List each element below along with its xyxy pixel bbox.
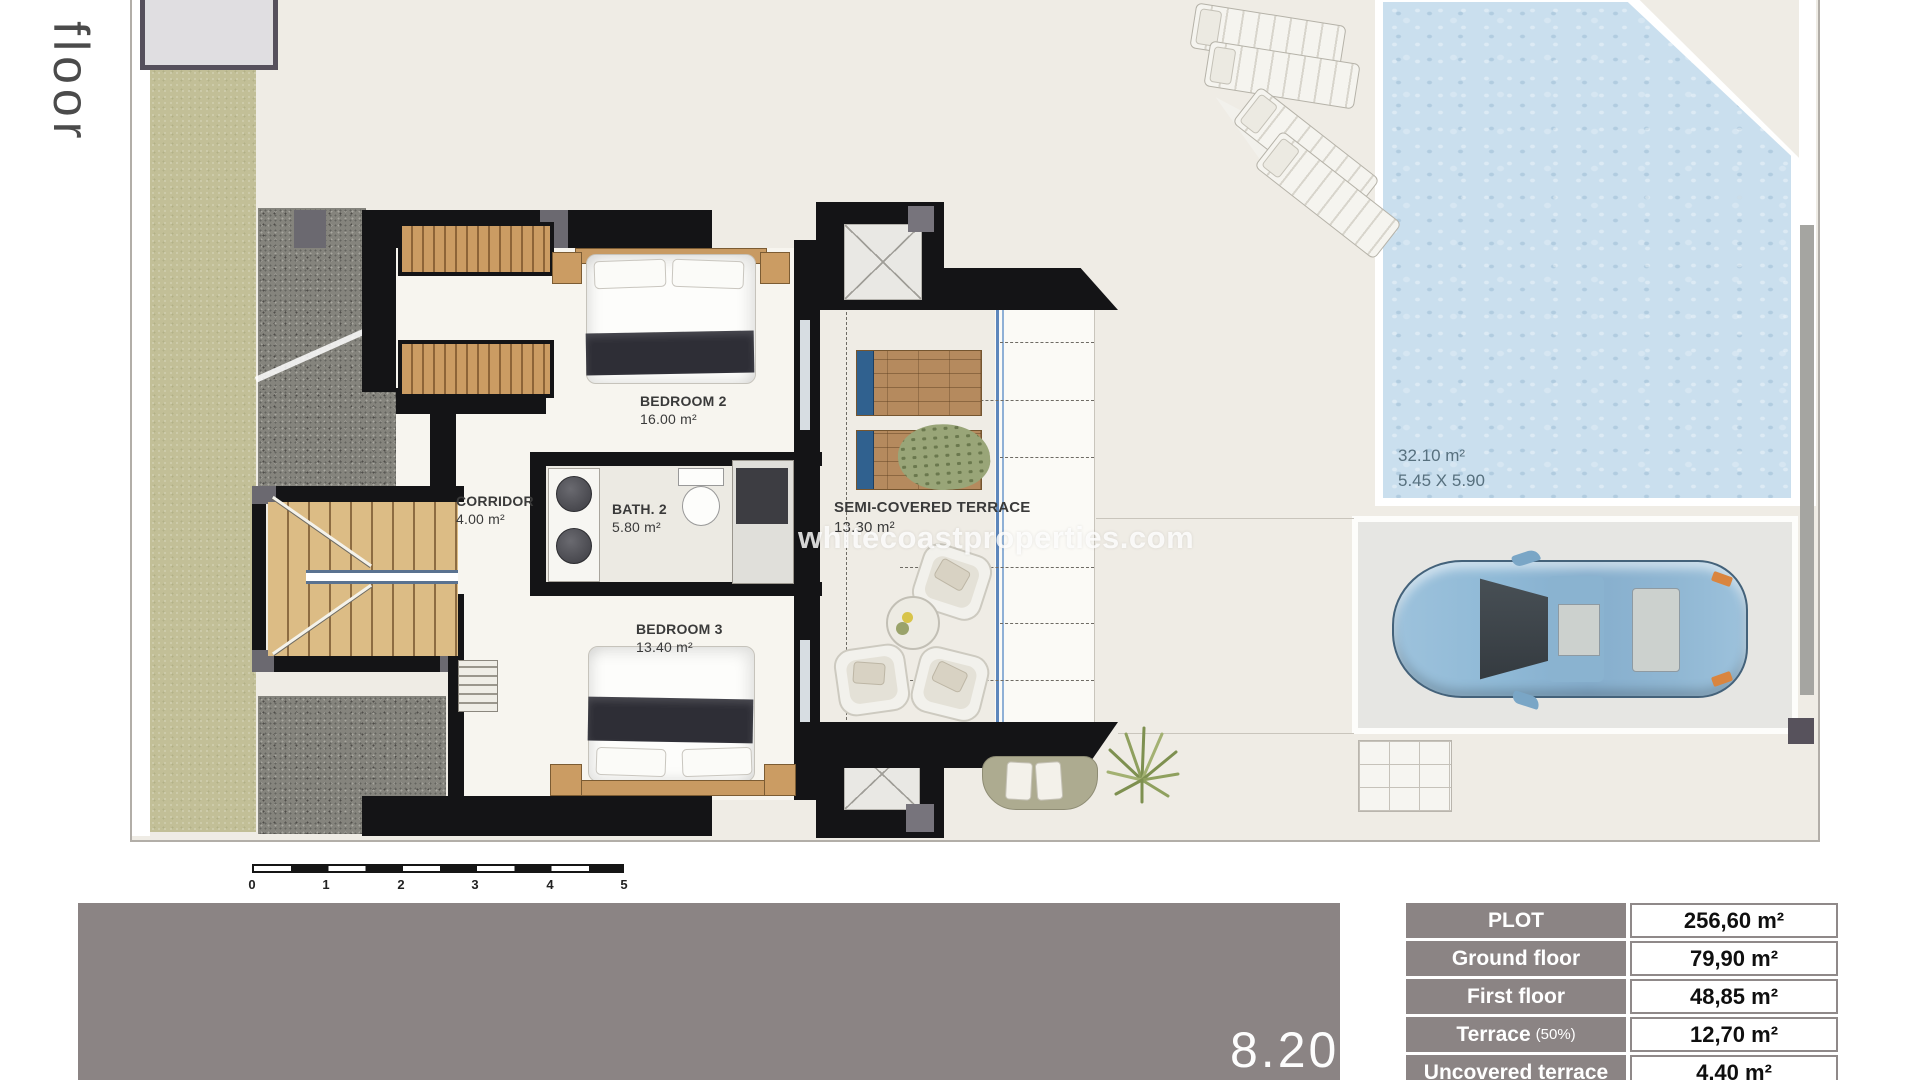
toilet: [678, 468, 724, 486]
bed-throw: [586, 331, 755, 376]
wall-segment: [252, 656, 464, 672]
wall-segment: [530, 582, 822, 596]
table-row-label: Uncovered terrace: [1406, 1055, 1626, 1080]
bench-cushion: [1035, 761, 1064, 801]
boundary-post: [1788, 718, 1814, 744]
nightstand: [550, 764, 582, 796]
floor-title-vertical: First floor: [42, 0, 100, 143]
boundary-wall-right: [1800, 225, 1814, 695]
shaft-x-symbol: [844, 224, 922, 300]
scale-tick: 3: [471, 877, 478, 892]
room-label-bath2: BATH. 2 5.80 m²: [612, 500, 667, 536]
room-name: SEMI-COVERED TERRACE: [834, 498, 1031, 518]
pool-label: 32.10 m² 5.45 X 5.90: [1398, 444, 1485, 493]
wall-segment: [252, 486, 266, 672]
table-row-label: Ground floor: [1406, 941, 1626, 976]
grass-plant: [1100, 720, 1184, 806]
table-row: Uncovered terrace 4,40 m²: [1406, 1055, 1838, 1080]
pillar: [906, 804, 934, 832]
table-row-value: 79,90 m²: [1630, 941, 1838, 976]
scale-tick: 2: [397, 877, 404, 892]
room-label-bedroom2: BEDROOM 2 16.00 m²: [640, 392, 727, 428]
wall-segment: [430, 388, 456, 492]
pool-area: 32.10 m²: [1398, 444, 1485, 469]
terrace-lounger: [856, 350, 982, 416]
paving-line: [1096, 518, 1354, 519]
room-area: 4.00 m²: [456, 510, 534, 528]
table-row: First floor 48,85 m²: [1406, 979, 1838, 1014]
room-name: BEDROOM 3: [636, 620, 723, 638]
table-row-label: PLOT: [1406, 903, 1626, 938]
pillar: [294, 210, 326, 248]
table-row-value: 12,70 m²: [1630, 1017, 1838, 1052]
wall-segment: [252, 486, 464, 502]
deck-edge-line: [1094, 310, 1095, 722]
car-rear-window: [1632, 588, 1680, 672]
roof-overhang-dashed: [1000, 623, 1094, 624]
scale-bar: 0 1 2 3 4 5: [252, 864, 624, 896]
window: [800, 640, 810, 730]
nightstand: [760, 252, 790, 284]
pillow: [596, 747, 667, 777]
table-row: Terrace(50%) 12,70 m²: [1406, 1017, 1838, 1052]
scale-tick: 5: [620, 877, 627, 892]
roof-overhang-dashed: [1000, 342, 1094, 343]
areas-table: PLOT 256,60 m² Ground floor 79,90 m² Fir…: [1406, 903, 1838, 1080]
pillow: [594, 259, 667, 289]
toilet: [682, 486, 720, 526]
table-row-value: 4,40 m²: [1630, 1055, 1838, 1080]
room-name: BEDROOM 2: [640, 392, 727, 410]
room-label-bedroom3: BEDROOM 3 13.40 m²: [636, 620, 723, 656]
garden-strip: [150, 58, 256, 832]
nightstand: [764, 764, 796, 796]
nightstand: [552, 252, 582, 284]
armchair: [832, 641, 913, 718]
sink: [556, 528, 592, 564]
stair-rail: [306, 570, 458, 584]
car-sunroof: [1558, 604, 1600, 656]
bench-cushion: [1005, 761, 1033, 800]
table-row-label: Terrace(50%): [1406, 1017, 1626, 1052]
window: [800, 320, 810, 430]
left-path-strip: [132, 0, 150, 836]
wall-segment: [362, 796, 712, 836]
room-name: CORRIDOR: [456, 492, 534, 510]
plan-number: 8.20: [1230, 1021, 1339, 1079]
shower-panel: [736, 468, 788, 524]
bottom-band: 8.20: [78, 903, 1340, 1080]
doormat: [458, 660, 498, 712]
wall-segment: [362, 210, 396, 392]
wardrobe: [398, 222, 554, 276]
table-row-label: First floor: [1406, 979, 1626, 1014]
room-name: BATH. 2: [612, 500, 667, 518]
table-row-value: 48,85 m²: [1630, 979, 1838, 1014]
table-decor: [896, 622, 909, 635]
roof-overhang-dashed: [1000, 457, 1094, 458]
car: [1392, 560, 1748, 698]
wardrobe: [398, 340, 554, 398]
table-row: Ground floor 79,90 m²: [1406, 941, 1838, 976]
room-area: 16.00 m²: [640, 410, 727, 428]
sink: [556, 476, 592, 512]
pool-dimensions: 5.45 X 5.90: [1398, 469, 1485, 494]
table-row-value: 256,60 m²: [1630, 903, 1838, 938]
watermark: whitecoastproperties.com: [798, 520, 1194, 556]
top-left-structure: [140, 0, 278, 70]
pillow: [672, 259, 745, 289]
scale-tick: 1: [322, 877, 329, 892]
pillar: [908, 206, 934, 232]
scale-tick: 0: [248, 877, 255, 892]
pillow: [682, 747, 753, 777]
exterior-steps: [1358, 740, 1452, 812]
room-area: 5.80 m²: [612, 518, 667, 536]
scale-strip: [252, 864, 624, 873]
scale-tick: 4: [546, 877, 553, 892]
floor-plan-page: First floor 32.10 m² 5.45 X 5.90: [0, 0, 1920, 1080]
table-row: PLOT 256,60 m²: [1406, 903, 1838, 938]
coffee-table: [886, 596, 940, 650]
room-label-corridor: CORRIDOR 4.00 m²: [456, 492, 534, 528]
room-area: 13.40 m²: [636, 638, 723, 656]
bed-headboard: [578, 780, 766, 796]
bed-throw: [588, 697, 754, 744]
